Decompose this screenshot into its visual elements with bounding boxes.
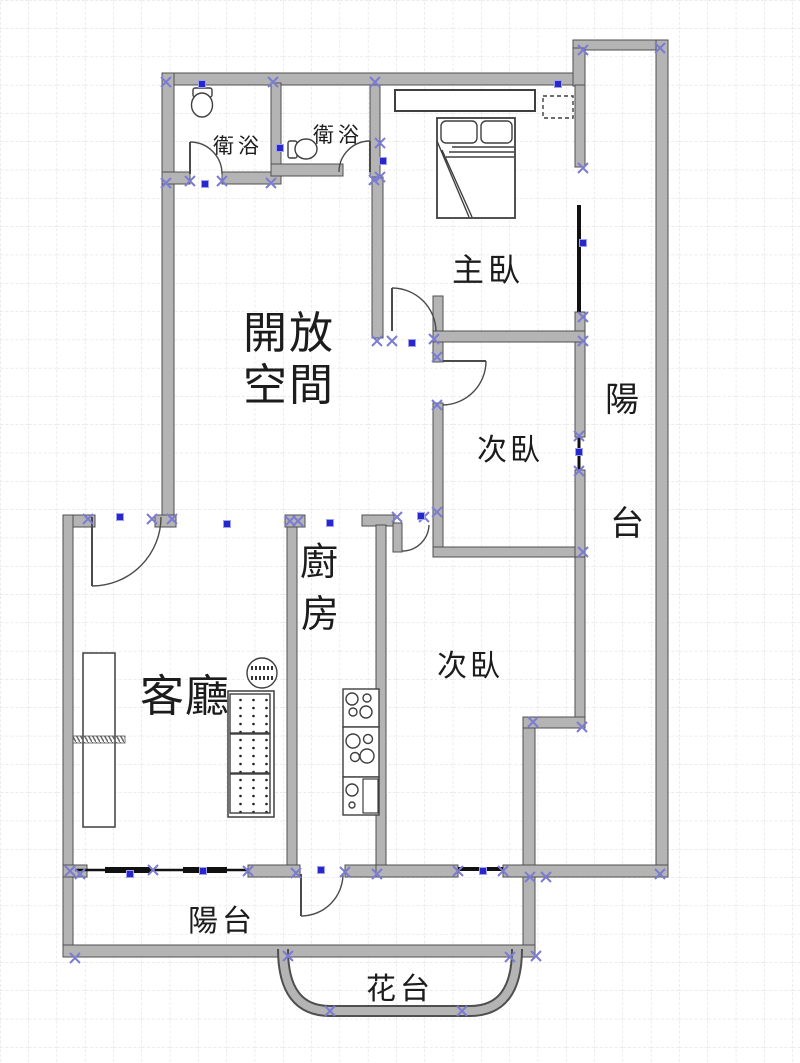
counter-burner[interactable] — [351, 753, 360, 762]
selection-handle-square[interactable] — [318, 867, 325, 874]
bed-pillow[interactable] — [481, 121, 512, 143]
sink-drain[interactable] — [349, 802, 355, 808]
wall-balcony-inner-upper[interactable] — [575, 85, 585, 167]
selection-handle-square[interactable] — [127, 871, 134, 878]
room-label-master-bedroom[interactable]: 主臥 — [452, 251, 524, 289]
wall-master-bottom[interactable] — [433, 331, 585, 342]
room-label-living-room[interactable]: 客廳 — [140, 671, 230, 722]
room-label-open-space-line2[interactable]: 空間 — [243, 360, 335, 411]
wall-bottom-outer[interactable] — [63, 945, 535, 957]
selection-handle-square[interactable] — [409, 340, 416, 347]
wall-right-lower[interactable] — [523, 728, 535, 957]
wall-kitchen-left[interactable] — [287, 527, 297, 877]
wall-living-bottom-mid[interactable] — [248, 865, 300, 877]
selection-handle-square[interactable] — [200, 868, 207, 875]
sofa-cushion[interactable] — [230, 734, 270, 773]
selection-handle-square[interactable] — [580, 240, 587, 247]
sink-basin[interactable] — [346, 784, 358, 796]
fan-table[interactable] — [247, 658, 277, 688]
wall-bedroom-upper-right-b[interactable] — [575, 470, 585, 557]
sink-board[interactable] — [363, 779, 378, 813]
room-label-open-space-line1[interactable]: 開放 — [243, 308, 335, 359]
counter-burner[interactable] — [360, 749, 374, 763]
floor-plan-svg: 開放空間主臥次臥次臥陽台廚房客廳衛浴衛浴陽台花台 — [0, 0, 800, 1063]
room-label-flower-bed[interactable]: 花台 — [366, 972, 434, 1007]
wall-kitchen-right-top[interactable] — [362, 515, 394, 526]
selection-handle-square[interactable] — [327, 520, 334, 527]
wall-left-outer-upper[interactable] — [162, 73, 174, 520]
stove-burner[interactable] — [349, 708, 357, 716]
selection-handle-square[interactable] — [224, 521, 231, 528]
stove-burner[interactable] — [346, 693, 358, 705]
stove-burner[interactable] — [360, 706, 372, 718]
room-label-balcony-bottom[interactable]: 陽台 — [188, 904, 256, 939]
wall-bedroom-upper-left[interactable] — [433, 403, 443, 557]
room-label-balcony-right-char2[interactable]: 台 — [610, 504, 644, 544]
selection-handle-square[interactable] — [380, 158, 387, 165]
stove-burner[interactable] — [363, 694, 371, 702]
room-label-kitchen-char1[interactable]: 廚 — [300, 540, 338, 584]
selection-handle-square[interactable] — [480, 868, 487, 875]
selection-handle-square[interactable] — [418, 513, 425, 520]
selection-handle-square[interactable] — [202, 181, 209, 188]
wall-left-outer-lower[interactable] — [63, 515, 73, 957]
selection-handle-square[interactable] — [277, 145, 284, 152]
selection-handle-square[interactable] — [576, 449, 583, 456]
room-label-bedroom-lower[interactable]: 次臥 — [437, 649, 503, 684]
selection-handle-square[interactable] — [199, 81, 206, 88]
room-label-bedroom-upper[interactable]: 次臥 — [477, 433, 543, 468]
wall-bedroom-upper-right-a[interactable] — [575, 342, 585, 437]
wardrobe[interactable] — [395, 90, 535, 111]
window-sill-hatch[interactable] — [73, 736, 125, 743]
wall-bedroom-upper-bottom[interactable] — [433, 547, 585, 557]
room-label-balcony-right-char1[interactable]: 陽 — [605, 380, 639, 420]
wall-right-outer[interactable] — [656, 40, 668, 877]
sofa-cushion[interactable] — [230, 694, 270, 733]
floor-plan-canvas[interactable]: 開放空間主臥次臥次臥陽台廚房客廳衛浴衛浴陽台花台 — [0, 0, 800, 1063]
counter-burner[interactable] — [364, 735, 373, 744]
wall-master-separator[interactable] — [372, 177, 383, 338]
wall-bath2-bottom[interactable] — [271, 164, 343, 176]
selection-handle-square[interactable] — [555, 81, 562, 88]
selection-handle-square[interactable] — [117, 514, 124, 521]
wall-bedroom-lower-bottom-a[interactable] — [376, 865, 458, 877]
room-label-bathroom-1[interactable]: 衛浴 — [213, 134, 263, 158]
wall-bedroom-lower-right[interactable] — [575, 557, 585, 722]
sofa-cushion[interactable] — [230, 774, 270, 813]
room-label-kitchen-char2[interactable]: 房 — [301, 592, 339, 636]
bed-pillow[interactable] — [441, 121, 477, 143]
toilet-bowl[interactable] — [192, 93, 213, 117]
wall-bath2-right[interactable] — [370, 85, 380, 177]
counter-burner[interactable] — [346, 734, 360, 748]
door-leaf-bedroom-lower[interactable] — [393, 523, 402, 552]
room-label-bathroom-2[interactable]: 衛浴 — [313, 123, 363, 147]
